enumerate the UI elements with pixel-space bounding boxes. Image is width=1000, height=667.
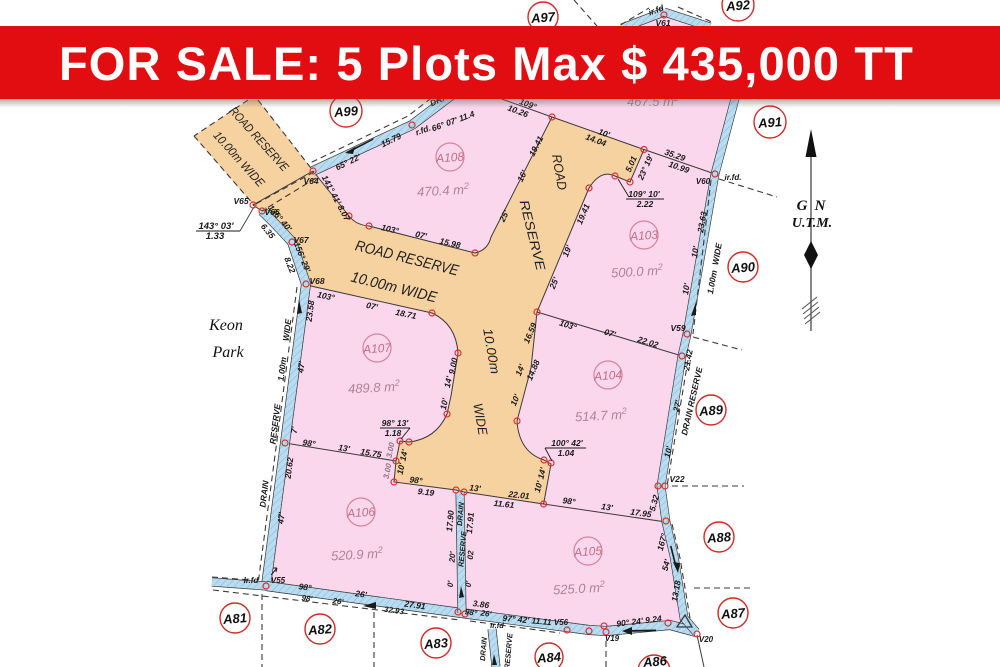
svg-text:489.8 m2: 489.8 m2	[348, 378, 401, 397]
svg-text:20': 20'	[447, 550, 457, 564]
svg-text:98°: 98°	[562, 495, 577, 507]
svg-text:N: N	[814, 198, 827, 214]
svg-text:A81: A81	[222, 610, 248, 627]
svg-text:Park: Park	[211, 344, 244, 361]
svg-text:98°: 98°	[464, 607, 478, 618]
svg-text:A86: A86	[641, 653, 668, 667]
svg-text:Keon: Keon	[208, 317, 243, 334]
svg-text:A82: A82	[307, 621, 334, 638]
svg-text:A106: A106	[346, 505, 376, 521]
svg-text:1.33: 1.33	[206, 231, 225, 242]
svg-text:V60: V60	[696, 177, 711, 186]
svg-text:G: G	[797, 198, 808, 214]
svg-text:A97: A97	[530, 9, 557, 26]
svg-text:A107: A107	[362, 340, 393, 356]
svg-text:A104: A104	[593, 368, 623, 384]
svg-text:100° 42': 100° 42'	[551, 438, 583, 448]
svg-text:47': 47'	[295, 360, 307, 375]
svg-text:17.90: 17.90	[444, 510, 456, 532]
svg-text:A84: A84	[536, 649, 563, 666]
svg-text:V55: V55	[271, 576, 286, 585]
svg-text:A108: A108	[435, 150, 465, 166]
svg-text:98°: 98°	[302, 437, 317, 449]
svg-text:109° 10': 109° 10'	[628, 189, 660, 199]
svg-text:520.9 m2: 520.9 m2	[331, 545, 384, 564]
svg-text:V68: V68	[309, 276, 324, 286]
svg-text:V59: V59	[670, 323, 685, 333]
svg-text:V22: V22	[669, 474, 684, 484]
svg-text:Ir.fd: Ir.fd	[490, 621, 504, 630]
svg-text:13': 13'	[469, 482, 482, 493]
svg-text:514.7 m2: 514.7 m2	[575, 406, 628, 425]
svg-text:A91: A91	[757, 114, 783, 131]
svg-text:02: 02	[466, 550, 476, 560]
svg-text:V19: V19	[605, 634, 620, 643]
svg-text:A88: A88	[706, 529, 733, 546]
svg-text:A89: A89	[698, 402, 725, 419]
svg-text:A103: A103	[629, 228, 659, 244]
svg-text:98°: 98°	[298, 581, 313, 593]
svg-text:98° 13': 98° 13'	[382, 418, 410, 428]
svg-text:2.22: 2.22	[636, 199, 654, 209]
svg-text:V64: V64	[303, 176, 318, 186]
svg-text:U.T.M.: U.T.M.	[792, 216, 832, 231]
svg-text:17.91: 17.91	[464, 512, 476, 534]
svg-text:V65: V65	[233, 196, 248, 206]
svg-text:A83: A83	[423, 635, 450, 652]
svg-text:V56: V56	[554, 618, 569, 627]
svg-text:ir.fd.: ir.fd.	[725, 173, 742, 182]
svg-text:A90: A90	[730, 259, 757, 276]
svg-text:A92: A92	[725, 0, 752, 14]
svg-text:26': 26'	[354, 588, 369, 600]
svg-text:525.0 m2: 525.0 m2	[553, 579, 606, 598]
svg-text:Ir.fd: Ir.fd	[244, 576, 260, 585]
svg-text:9.19: 9.19	[417, 486, 435, 498]
svg-text:47': 47'	[275, 511, 287, 526]
svg-text:1.04: 1.04	[558, 448, 575, 458]
svg-text:A87: A87	[720, 605, 747, 622]
svg-text:500.0 m2: 500.0 m2	[611, 262, 664, 281]
svg-text:A105: A105	[573, 544, 603, 560]
svg-text:470.4 m2: 470.4 m2	[417, 181, 470, 200]
svg-text:98°: 98°	[409, 474, 424, 486]
svg-text:V20: V20	[699, 635, 714, 644]
svg-text:FOR SALE: 5 Plots Max $ 435,00: FOR SALE: 5 Plots Max $ 435,000 TT	[59, 37, 914, 90]
svg-text:1.18: 1.18	[385, 428, 402, 438]
